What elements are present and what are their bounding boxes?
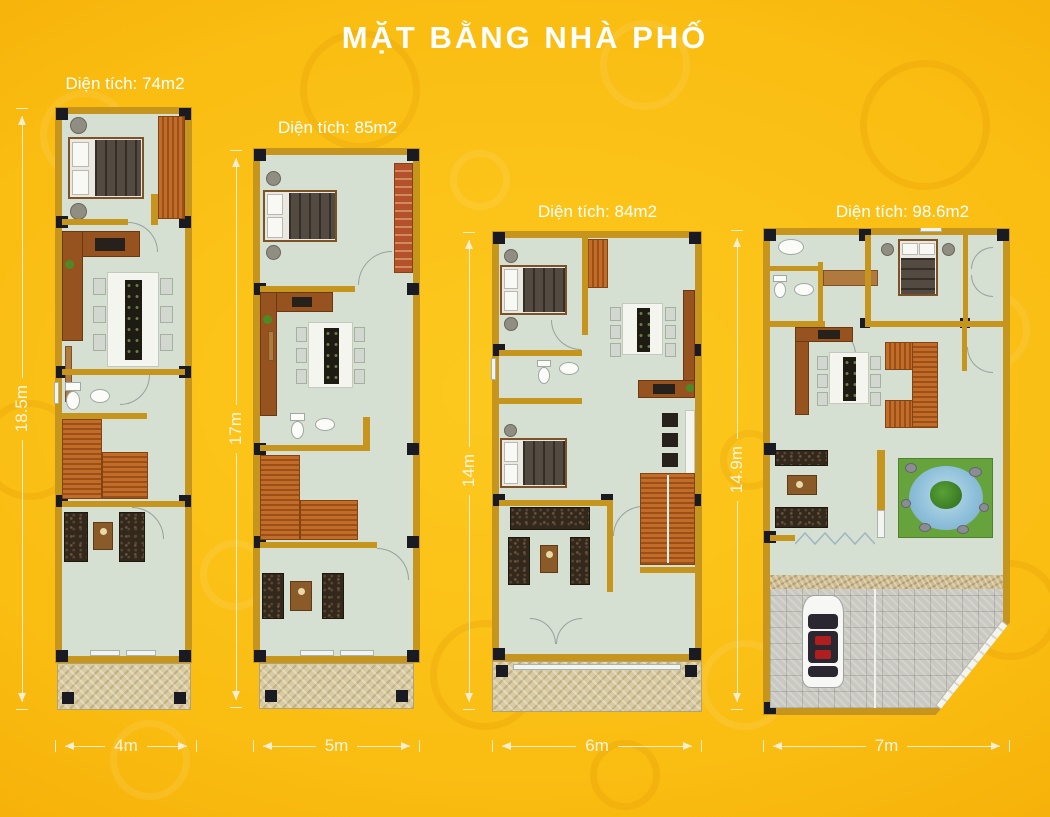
plan3-width-label: 6m: [585, 736, 609, 756]
dim-line: [502, 746, 576, 747]
kitchen-counter: [62, 231, 83, 341]
pillow: [504, 269, 518, 289]
dim-line: [263, 746, 316, 747]
decor-dot: [100, 528, 107, 535]
dim-line: [737, 238, 738, 439]
pillow: [267, 194, 283, 215]
door-arc: [377, 548, 409, 580]
window: [920, 227, 942, 232]
toilet: [290, 413, 305, 421]
blanket: [523, 268, 565, 312]
sink: [315, 418, 335, 431]
stairs: [62, 419, 102, 499]
dim-line: [22, 116, 23, 378]
chair: [160, 278, 173, 295]
column: [689, 232, 701, 244]
dining-table: [829, 352, 869, 404]
pillow: [504, 291, 518, 311]
window: [54, 382, 59, 404]
entry-door: [90, 650, 120, 656]
door-arc: [551, 320, 581, 350]
rock: [905, 463, 917, 473]
decor-dot: [546, 551, 553, 558]
door-arc: [613, 506, 643, 536]
table-runner: [637, 308, 650, 352]
wall: [62, 219, 128, 225]
wardrobe-mark: [971, 247, 993, 269]
chair: [665, 343, 676, 357]
rock: [979, 503, 989, 512]
column: [56, 650, 68, 662]
windshield: [808, 614, 838, 629]
chair: [354, 348, 365, 363]
plan-1: [55, 107, 192, 663]
wall: [363, 417, 370, 445]
bed: [68, 137, 144, 199]
column: [407, 536, 419, 548]
rock: [957, 525, 969, 534]
porch-column: [62, 692, 74, 704]
pillow: [72, 142, 89, 167]
nightstand: [504, 249, 518, 263]
wall: [62, 501, 185, 507]
rock: [901, 499, 911, 508]
decor-dot: [796, 481, 803, 488]
wall: [499, 398, 582, 404]
plan1-width-label: 4m: [114, 736, 138, 756]
plan3-width-dimension: 6m: [492, 736, 702, 756]
entry-door: [300, 650, 334, 656]
wall: [770, 535, 795, 541]
wall: [770, 266, 818, 271]
toilet: [773, 275, 787, 282]
bed: [898, 239, 938, 296]
porch-column: [174, 692, 186, 704]
wall: [877, 450, 885, 510]
plan2-width-label: 5m: [325, 736, 349, 756]
toilet: [66, 391, 80, 410]
bed: [500, 265, 567, 315]
plan2-height-dimension: 17m: [226, 150, 246, 708]
plan3-height-dimension: 14m: [459, 232, 479, 710]
plan-3: [492, 231, 702, 661]
page-title: MẶT BẰNG NHÀ PHỐ: [0, 20, 1050, 56]
tv-cabinet: [510, 507, 590, 530]
nightstand: [70, 117, 87, 134]
dim-line: [618, 746, 692, 747]
column: [764, 229, 776, 241]
chair: [817, 356, 828, 370]
car: [802, 595, 844, 688]
stairs: [912, 342, 938, 428]
blanket: [289, 193, 335, 239]
stairs: [885, 400, 913, 428]
column: [56, 108, 68, 120]
plan4-width-dimension: 7m: [763, 736, 1010, 756]
bar-stool: [662, 413, 678, 427]
porch-column: [496, 665, 508, 677]
plan3-height-label: 14m: [459, 454, 479, 487]
wall: [260, 445, 370, 451]
car-seat: [815, 650, 831, 659]
door-arc: [967, 347, 993, 373]
column: [407, 283, 419, 295]
dim-line: [236, 453, 237, 700]
chair: [817, 392, 828, 406]
floor-plan-sheet: MẶT BẰNG NHÀ PHỐ Diện tích: 74m2 Diện tí…: [0, 0, 1050, 817]
plant: [263, 315, 272, 324]
coffee-table: [540, 545, 558, 573]
sofa: [775, 450, 828, 466]
chair: [610, 343, 621, 357]
plan2-width-dimension: 5m: [253, 736, 420, 756]
sofa: [64, 512, 88, 562]
stove: [653, 384, 675, 394]
chair: [610, 307, 621, 321]
swirl-ornament: [110, 720, 190, 800]
sink: [794, 283, 814, 296]
table-runner: [324, 328, 339, 384]
decor-dot: [298, 588, 305, 595]
nightstand: [504, 317, 518, 331]
pillow: [267, 217, 283, 238]
column: [493, 648, 505, 660]
plan4-height-label: 14.9m: [727, 446, 747, 493]
dim-line: [236, 158, 237, 405]
chair: [93, 278, 106, 295]
plan4-height-dimension: 14.9m: [727, 230, 747, 710]
nightstand: [881, 243, 894, 256]
dim-line: [357, 746, 410, 747]
chair: [296, 369, 307, 384]
coffee-table: [93, 522, 113, 550]
stove: [818, 330, 840, 339]
toilet: [537, 360, 551, 367]
bush: [930, 481, 962, 509]
pillow: [919, 243, 935, 255]
window: [491, 358, 496, 380]
column: [254, 650, 266, 662]
wall: [865, 235, 871, 321]
column: [407, 443, 419, 455]
chair: [93, 334, 106, 351]
dining-table: [107, 272, 159, 367]
threshold: [513, 664, 681, 670]
chair: [870, 392, 881, 406]
column: [997, 229, 1009, 241]
plan1-width-dimension: 4m: [55, 736, 197, 756]
wall: [963, 235, 968, 321]
dim-line: [65, 746, 105, 747]
rock: [919, 523, 931, 532]
blanket: [901, 258, 935, 294]
chair: [870, 374, 881, 388]
nightstand: [504, 424, 517, 437]
wall: [962, 321, 967, 371]
plan4-width-label: 7m: [875, 736, 899, 756]
plan-4: [763, 228, 1010, 715]
sofa: [508, 537, 530, 585]
sofa: [262, 573, 284, 619]
dim-line: [147, 746, 187, 747]
stairs: [300, 500, 358, 540]
plan1-height-dimension: 18.5m: [12, 108, 32, 710]
chair: [817, 374, 828, 388]
blanket: [95, 140, 141, 196]
chair: [610, 325, 621, 339]
plan1-area-label: Diện tích: 74m2: [40, 74, 210, 94]
sofa: [119, 512, 145, 562]
parking-divider: [874, 589, 876, 708]
column: [493, 232, 505, 244]
swirl-ornament: [860, 60, 990, 190]
wall: [499, 500, 607, 506]
dim-line: [737, 501, 738, 702]
porch: [492, 661, 702, 712]
balcony: [394, 163, 413, 273]
sofa: [775, 507, 828, 528]
entry-door-arc: [530, 618, 556, 644]
dining-table: [308, 322, 353, 388]
dim-line: [22, 440, 23, 702]
sink: [90, 389, 110, 403]
column: [407, 149, 419, 161]
plan2-area-label: Diện tích: 85m2: [245, 118, 430, 138]
stove: [95, 238, 125, 251]
chair: [160, 334, 173, 351]
porch-column: [396, 690, 408, 702]
nightstand: [266, 171, 281, 186]
sofa: [322, 573, 344, 619]
stairs: [102, 452, 148, 499]
entry-door: [126, 650, 156, 656]
door: [877, 510, 885, 538]
stairs: [260, 455, 300, 540]
dim-line: [907, 746, 1000, 747]
table-runner: [843, 357, 856, 401]
chair: [354, 369, 365, 384]
swirl-ornament: [450, 150, 510, 210]
desk: [685, 410, 695, 475]
plan2-height-label: 17m: [226, 412, 246, 445]
porch: [259, 663, 414, 709]
plan1-height-label: 18.5m: [12, 385, 32, 432]
plan3-area-label: Diện tích: 84m2: [500, 202, 695, 222]
toilet: [65, 382, 81, 391]
column: [179, 650, 191, 662]
stove: [292, 297, 312, 307]
chair: [354, 327, 365, 342]
plan4-area-label: Diện tích: 98.6m2: [805, 202, 1000, 222]
chair: [870, 356, 881, 370]
wall: [260, 542, 377, 548]
plant: [65, 260, 74, 269]
nightstand: [266, 245, 281, 260]
plant: [686, 384, 694, 392]
column: [407, 650, 419, 662]
chair: [93, 306, 106, 323]
balcony: [158, 116, 185, 219]
folding-door: [795, 530, 875, 548]
gravel-strip: [770, 575, 1003, 589]
coffee-table: [787, 475, 817, 495]
blanket: [523, 441, 565, 485]
stair-landing: [667, 475, 669, 563]
porch-column: [685, 665, 697, 677]
pillow: [504, 442, 518, 462]
column: [254, 149, 266, 161]
rock: [969, 467, 982, 477]
nightstand: [942, 243, 955, 256]
entry-door-arc: [556, 618, 582, 644]
plan-2: [253, 148, 420, 663]
pillow: [902, 243, 918, 255]
dining-table: [622, 303, 663, 355]
wall: [499, 350, 582, 356]
pillow: [72, 170, 89, 195]
kitchen-counter: [683, 290, 695, 382]
wall: [640, 567, 695, 573]
chair: [296, 327, 307, 342]
car-roof: [808, 631, 838, 663]
sink: [559, 362, 579, 375]
toilet: [774, 282, 786, 298]
wall: [607, 500, 613, 592]
chair: [665, 325, 676, 339]
bed: [500, 438, 567, 488]
garden: [898, 458, 993, 538]
dim-line: [469, 495, 470, 702]
chair: [665, 307, 676, 321]
shelf: [268, 331, 274, 361]
porch: [57, 663, 191, 710]
stairs: [885, 342, 913, 370]
toilet: [538, 367, 550, 384]
toilet: [291, 421, 304, 439]
dim-line: [469, 240, 470, 447]
table-runner: [125, 280, 142, 360]
door-arc: [120, 375, 150, 405]
wardrobe-mark: [971, 275, 993, 297]
bar-stool: [662, 453, 678, 467]
wall: [151, 194, 158, 225]
wall: [582, 238, 588, 335]
bathtub: [778, 239, 804, 255]
car-seat: [815, 636, 831, 645]
nightstand: [70, 203, 87, 220]
chair: [160, 306, 173, 323]
chair: [296, 348, 307, 363]
bar-stool: [662, 433, 678, 447]
wall: [865, 321, 1003, 327]
porch-column: [265, 690, 277, 702]
column: [689, 648, 701, 660]
dim-line: [773, 746, 866, 747]
coffee-table: [290, 581, 312, 611]
bed: [263, 190, 337, 242]
entry-door: [340, 650, 374, 656]
pillow: [504, 464, 518, 484]
rear-window: [808, 666, 838, 677]
door-arc: [358, 251, 392, 285]
sofa: [570, 537, 590, 585]
